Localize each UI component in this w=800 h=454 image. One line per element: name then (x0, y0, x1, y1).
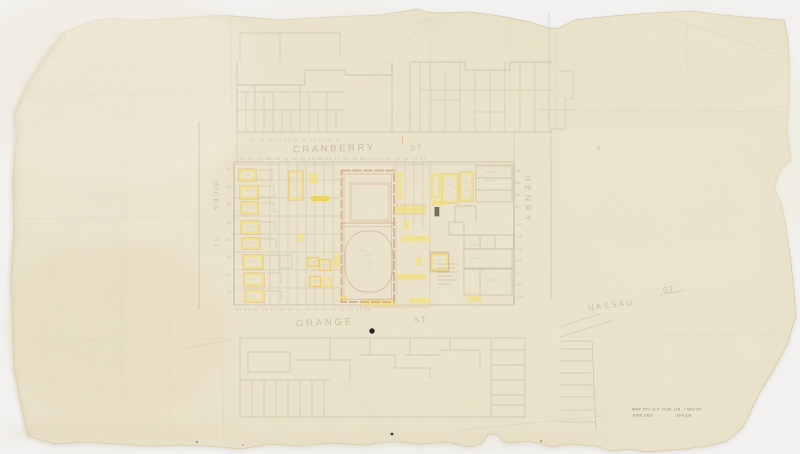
svg-text:ORANGE: ORANGE (296, 316, 354, 329)
svg-text:CRANBERRY: CRANBERRY (293, 142, 376, 155)
svg-text:50 48 46 44 42 40 38 36 34 32: 50 48 46 44 42 40 38 36 34 32 30 (250, 138, 342, 142)
svg-text:HICKS: HICKS (212, 181, 219, 211)
svg-text:42: 42 (227, 221, 231, 225)
svg-text:ST: ST (410, 143, 424, 152)
svg-text:29.4.118: 29.4.118 (676, 413, 692, 418)
svg-text:MAP DIV. N.Y. PUB. LIB. + BKLY: MAP DIV. N.Y. PUB. LIB. + BKLYN (632, 407, 701, 412)
svg-text:55 53 51 49 47 45 43 41 39: 55 53 51 49 47 45 43 41 39 37 35 33 31 2… (236, 308, 371, 312)
svg-text:121: 121 (516, 283, 522, 287)
svg-text:89: 89 (516, 181, 520, 185)
svg-text:117: 117 (516, 271, 522, 275)
svg-text:38: 38 (227, 238, 231, 242)
svg-text:101: 101 (516, 223, 522, 227)
svg-text:54 52 50 48 46 44 42 40 38 36: 54 52 50 48 46 44 42 40 38 36 34 32 30 2… (240, 157, 427, 161)
svg-text:ST: ST (414, 315, 428, 324)
svg-text:46: 46 (227, 202, 231, 206)
svg-text:85: 85 (516, 169, 520, 173)
svg-text:HENRY: HENRY (523, 175, 533, 225)
svg-text:26: 26 (227, 290, 231, 294)
svg-text:113: 113 (516, 259, 522, 263)
svg-text:34: 34 (227, 255, 231, 259)
svg-text:109: 109 (516, 247, 522, 251)
svg-text:105: 105 (516, 235, 522, 239)
svg-text:JUNE 1923: JUNE 1923 (632, 413, 653, 418)
svg-text:ST: ST (212, 237, 219, 249)
svg-text:93: 93 (516, 193, 520, 197)
svg-text:30: 30 (227, 273, 231, 277)
svg-text:54: 54 (227, 167, 231, 171)
svg-text:50: 50 (227, 185, 231, 189)
svg-text:97: 97 (516, 205, 520, 209)
svg-text:125: 125 (517, 295, 523, 299)
